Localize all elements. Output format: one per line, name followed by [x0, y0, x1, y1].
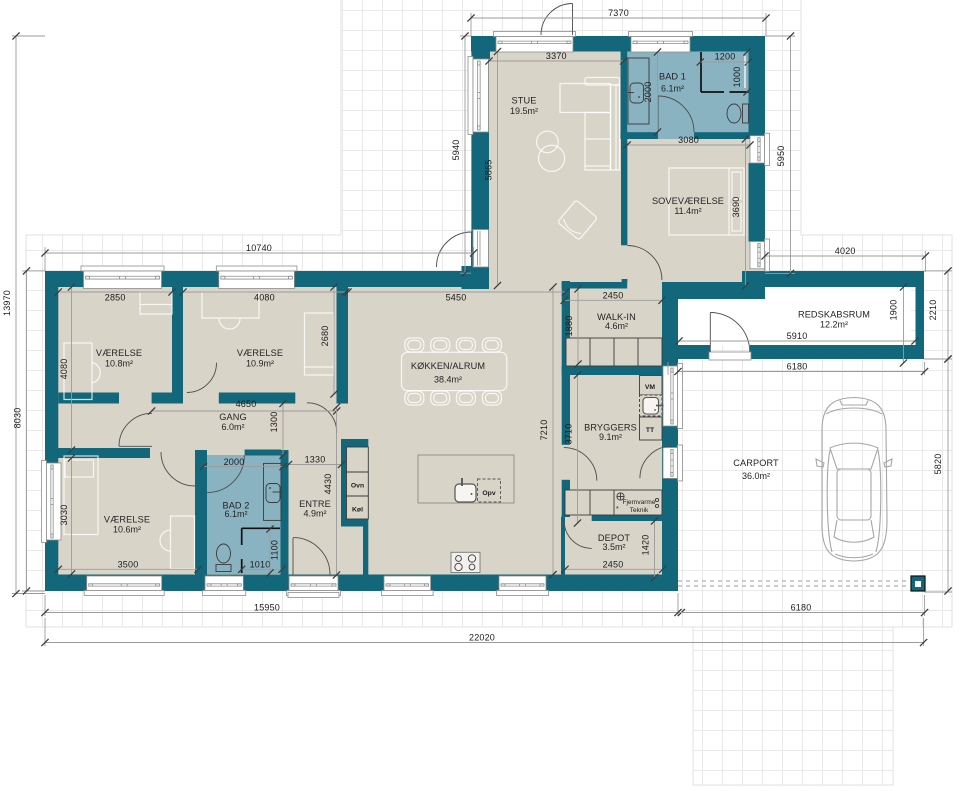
- svg-text:7370: 7370: [608, 8, 629, 18]
- svg-text:13970: 13970: [2, 290, 12, 316]
- svg-text:TT: TT: [646, 427, 655, 434]
- svg-text:4020: 4020: [835, 246, 856, 256]
- svg-text:1200: 1200: [715, 52, 736, 62]
- svg-text:5450: 5450: [446, 293, 467, 303]
- svg-text:10.8m²: 10.8m²: [105, 359, 133, 369]
- svg-text:36.0m²: 36.0m²: [742, 471, 770, 481]
- svg-text:15950: 15950: [254, 603, 280, 613]
- svg-text:6.1m²: 6.1m²: [224, 509, 247, 519]
- svg-text:11.4m²: 11.4m²: [674, 206, 701, 216]
- svg-text:Opv: Opv: [482, 490, 495, 497]
- svg-text:1100: 1100: [270, 540, 280, 560]
- svg-text:1420: 1420: [641, 535, 651, 556]
- svg-text:4.9m²: 4.9m²: [303, 509, 326, 519]
- svg-text:4080: 4080: [59, 359, 69, 380]
- svg-text:3500: 3500: [118, 560, 139, 570]
- svg-text:BRYGGERS: BRYGGERS: [584, 422, 637, 432]
- svg-text:5910: 5910: [787, 331, 808, 341]
- svg-text:6.1m²: 6.1m²: [661, 83, 684, 93]
- svg-text:4080: 4080: [254, 293, 275, 303]
- svg-text:REDSKABSRUM: REDSKABSRUM: [798, 310, 870, 320]
- svg-text:6180: 6180: [787, 362, 808, 372]
- svg-text:1880: 1880: [564, 316, 574, 337]
- svg-text:2210: 2210: [928, 300, 938, 321]
- svg-text:1330: 1330: [305, 455, 326, 465]
- svg-text:12.2m²: 12.2m²: [820, 319, 848, 329]
- svg-text:SOVEVÆRELSE: SOVEVÆRELSE: [652, 196, 724, 206]
- svg-text:6.0m²: 6.0m²: [221, 422, 244, 432]
- svg-text:3370: 3370: [546, 51, 567, 61]
- svg-text:Teknik: Teknik: [630, 507, 649, 514]
- svg-text:9.1m²: 9.1m²: [599, 432, 622, 442]
- svg-text:2450: 2450: [603, 291, 624, 301]
- svg-text:4430: 4430: [323, 474, 333, 495]
- svg-text:3.5m²: 3.5m²: [602, 542, 625, 552]
- svg-text:4.6m²: 4.6m²: [605, 321, 628, 331]
- svg-text:1300: 1300: [269, 412, 279, 433]
- svg-text:3710: 3710: [564, 424, 574, 445]
- svg-text:10.6m²: 10.6m²: [113, 525, 141, 535]
- svg-text:4650: 4650: [236, 399, 257, 409]
- svg-text:*: *: [616, 506, 619, 513]
- svg-text:5820: 5820: [933, 454, 943, 475]
- svg-text:5865: 5865: [484, 160, 494, 181]
- svg-text:STUE: STUE: [512, 95, 537, 105]
- svg-text:2450: 2450: [603, 560, 624, 570]
- svg-text:CARPORT: CARPORT: [733, 458, 779, 468]
- svg-text:10740: 10740: [246, 243, 272, 253]
- svg-text:KØKKEN/ALRUM: KØKKEN/ALRUM: [411, 361, 485, 371]
- svg-text:10.9m²: 10.9m²: [246, 359, 274, 369]
- svg-text:Ovn: Ovn: [351, 483, 364, 490]
- svg-text:BAD 1: BAD 1: [659, 72, 686, 82]
- svg-text:6180: 6180: [791, 603, 812, 613]
- svg-text:2850: 2850: [105, 293, 126, 303]
- svg-text:5940: 5940: [451, 140, 461, 161]
- svg-text:1010: 1010: [250, 560, 271, 570]
- svg-text:3690: 3690: [731, 197, 741, 218]
- svg-text:38.4m²: 38.4m²: [434, 374, 462, 384]
- svg-text:3080: 3080: [678, 135, 699, 145]
- svg-text:VÆRELSE: VÆRELSE: [237, 348, 283, 358]
- svg-text:1900: 1900: [889, 300, 899, 321]
- svg-text:GANG: GANG: [219, 412, 246, 422]
- svg-text:7210: 7210: [539, 420, 549, 441]
- svg-text:Køl: Køl: [352, 507, 363, 514]
- svg-text:Fjernvarme: Fjernvarme: [623, 499, 656, 506]
- svg-text:8030: 8030: [13, 408, 23, 429]
- svg-text:2000: 2000: [643, 82, 653, 103]
- svg-text:22020: 22020: [469, 633, 495, 643]
- svg-text:2680: 2680: [320, 326, 330, 347]
- svg-text:2000: 2000: [224, 457, 245, 467]
- svg-text:3030: 3030: [59, 505, 69, 526]
- svg-text:VÆRELSE: VÆRELSE: [104, 515, 150, 525]
- svg-text:1000: 1000: [732, 67, 742, 88]
- svg-text:5950: 5950: [776, 146, 786, 167]
- svg-text:ENTRE: ENTRE: [299, 499, 331, 509]
- svg-text:19.5m²: 19.5m²: [510, 106, 538, 116]
- svg-text:VÆRELSE: VÆRELSE: [96, 348, 142, 358]
- svg-text:VM: VM: [645, 384, 656, 391]
